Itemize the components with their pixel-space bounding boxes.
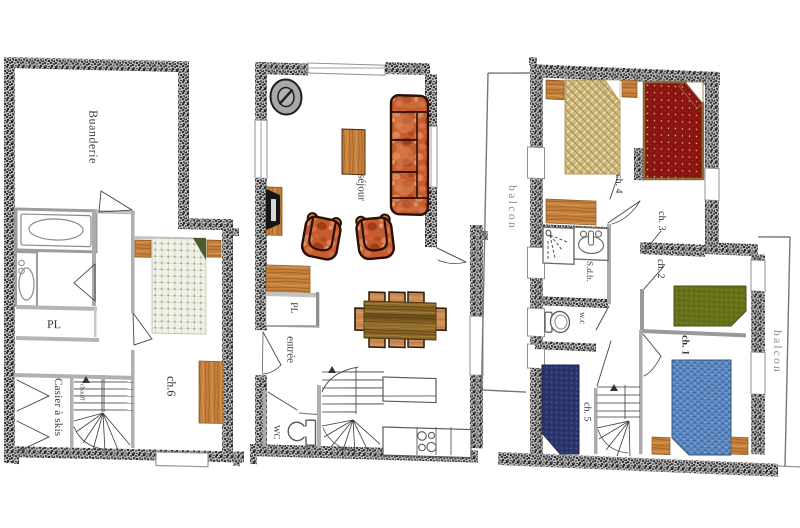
svg-text:ch. 2: ch. 2 (655, 259, 666, 279)
svg-text:Buanderie: Buanderie (87, 110, 101, 164)
svg-text:ch. 3: ch. 3 (656, 211, 667, 231)
svg-text:ch.6: ch.6 (165, 376, 179, 397)
svg-text:PL: PL (288, 302, 299, 314)
svg-text:WC: WC (272, 425, 282, 440)
svg-text:séjour: séjour (356, 174, 368, 202)
svg-text:balcon: balcon (506, 185, 518, 231)
svg-text:ch. 1: ch. 1 (680, 335, 691, 355)
svg-text:entrée: entrée (285, 336, 297, 363)
svg-text:PL: PL (47, 317, 61, 331)
svg-text:Casier à skis: Casier à skis (52, 378, 64, 436)
svg-text:balcon: balcon (771, 330, 783, 374)
svg-text:chauff: chauff (79, 384, 86, 401)
svg-text:ch. 4: ch. 4 (613, 174, 624, 194)
svg-text:w.c: w.c (578, 312, 588, 325)
svg-text:ch. 5: ch. 5 (582, 402, 593, 422)
svg-text:S.d.b.: S.d.b. (585, 261, 595, 282)
